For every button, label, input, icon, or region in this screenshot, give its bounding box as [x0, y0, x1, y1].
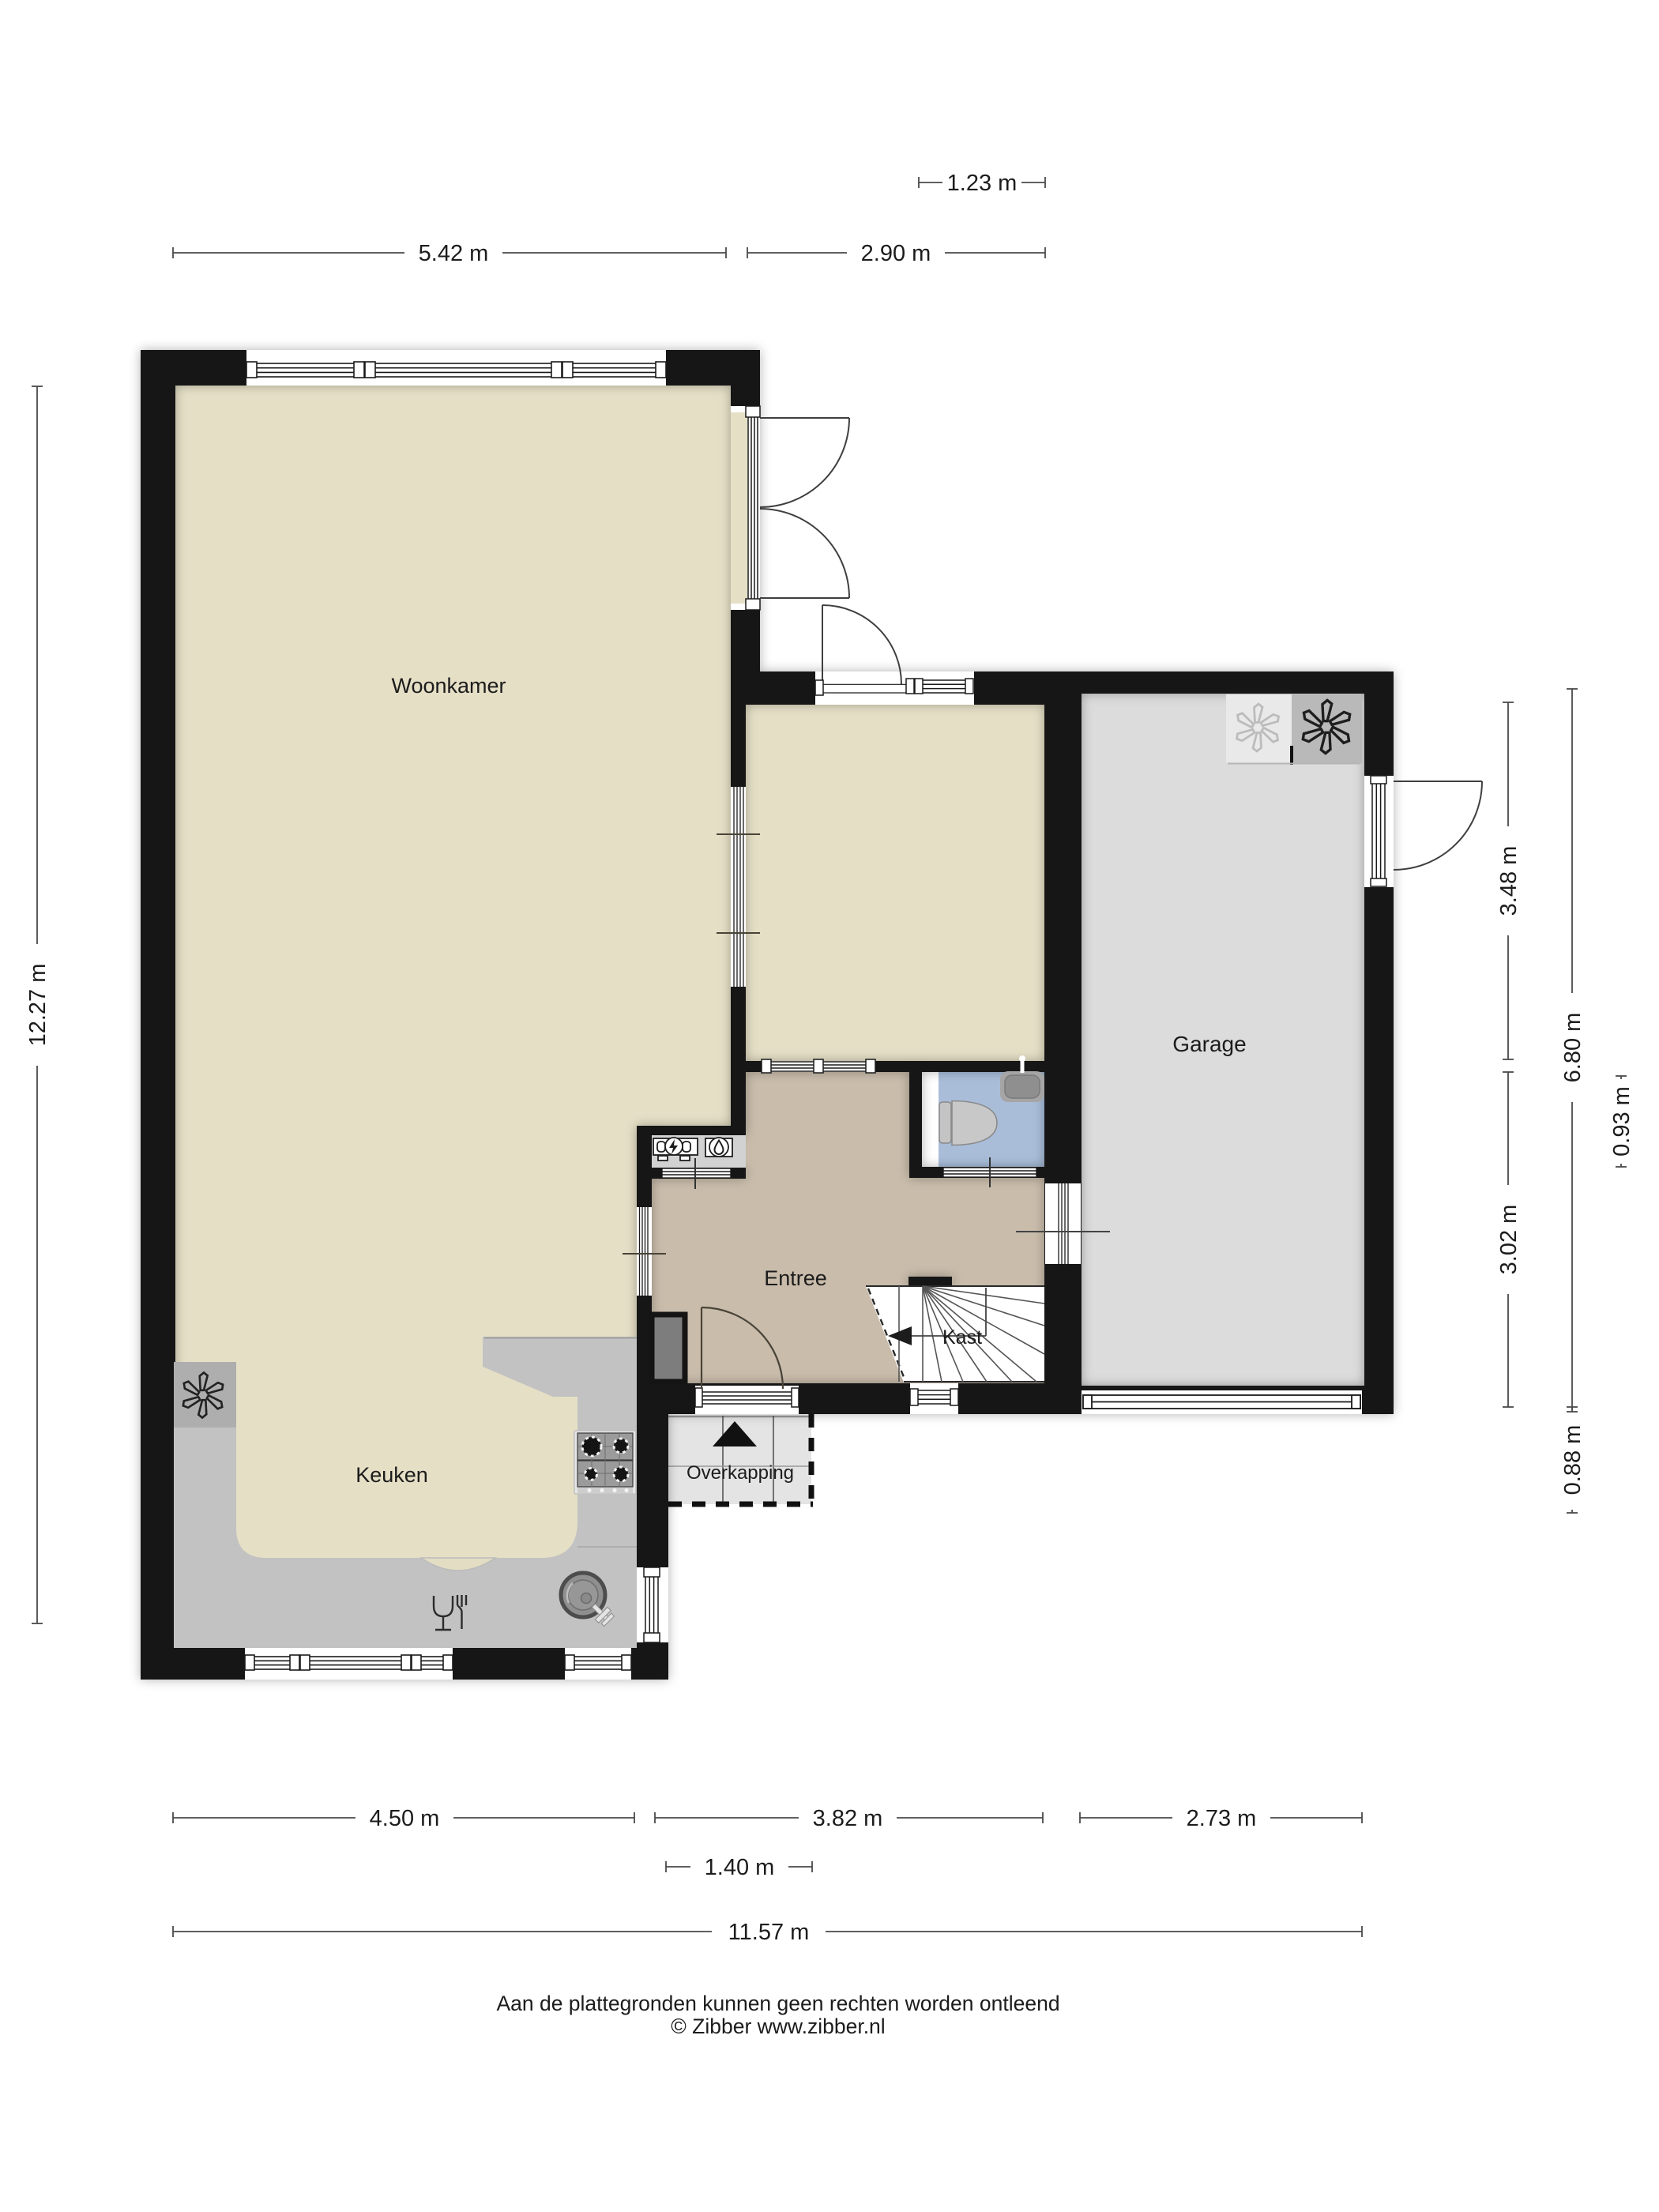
svg-text:Woonkamer: Woonkamer	[391, 674, 506, 698]
svg-text:Aan de plattegronden kunnen ge: Aan de plattegronden kunnen geen rechten…	[496, 1992, 1059, 2015]
svg-text:5.42 m: 5.42 m	[419, 241, 489, 266]
svg-text:Kast: Kast	[942, 1326, 982, 1349]
svg-text:1.23 m: 1.23 m	[947, 171, 1018, 196]
svg-text:0.93 m: 0.93 m	[1609, 1086, 1635, 1157]
svg-text:Entree: Entree	[764, 1266, 827, 1290]
svg-text:6.80 m: 6.80 m	[1560, 1013, 1586, 1083]
svg-text:2.90 m: 2.90 m	[861, 241, 931, 266]
svg-text:1.40 m: 1.40 m	[705, 1855, 775, 1880]
svg-text:11.57 m: 11.57 m	[728, 1920, 810, 1945]
svg-text:0.88 m: 0.88 m	[1560, 1425, 1586, 1495]
svg-text:3.82 m: 3.82 m	[813, 1806, 883, 1831]
svg-text:Garage: Garage	[1172, 1032, 1246, 1056]
svg-text:3.02 m: 3.02 m	[1496, 1205, 1522, 1275]
svg-text:4.50 m: 4.50 m	[370, 1806, 440, 1831]
svg-text:2.73 m: 2.73 m	[1187, 1806, 1257, 1831]
svg-text:Overkapping: Overkapping	[687, 1462, 794, 1484]
svg-text:© Zibber www.zibber.nl: © Zibber www.zibber.nl	[671, 2014, 885, 2038]
svg-text:Keuken: Keuken	[355, 1463, 428, 1487]
svg-text:12.27 m: 12.27 m	[25, 964, 51, 1047]
svg-text:3.48 m: 3.48 m	[1496, 846, 1522, 916]
